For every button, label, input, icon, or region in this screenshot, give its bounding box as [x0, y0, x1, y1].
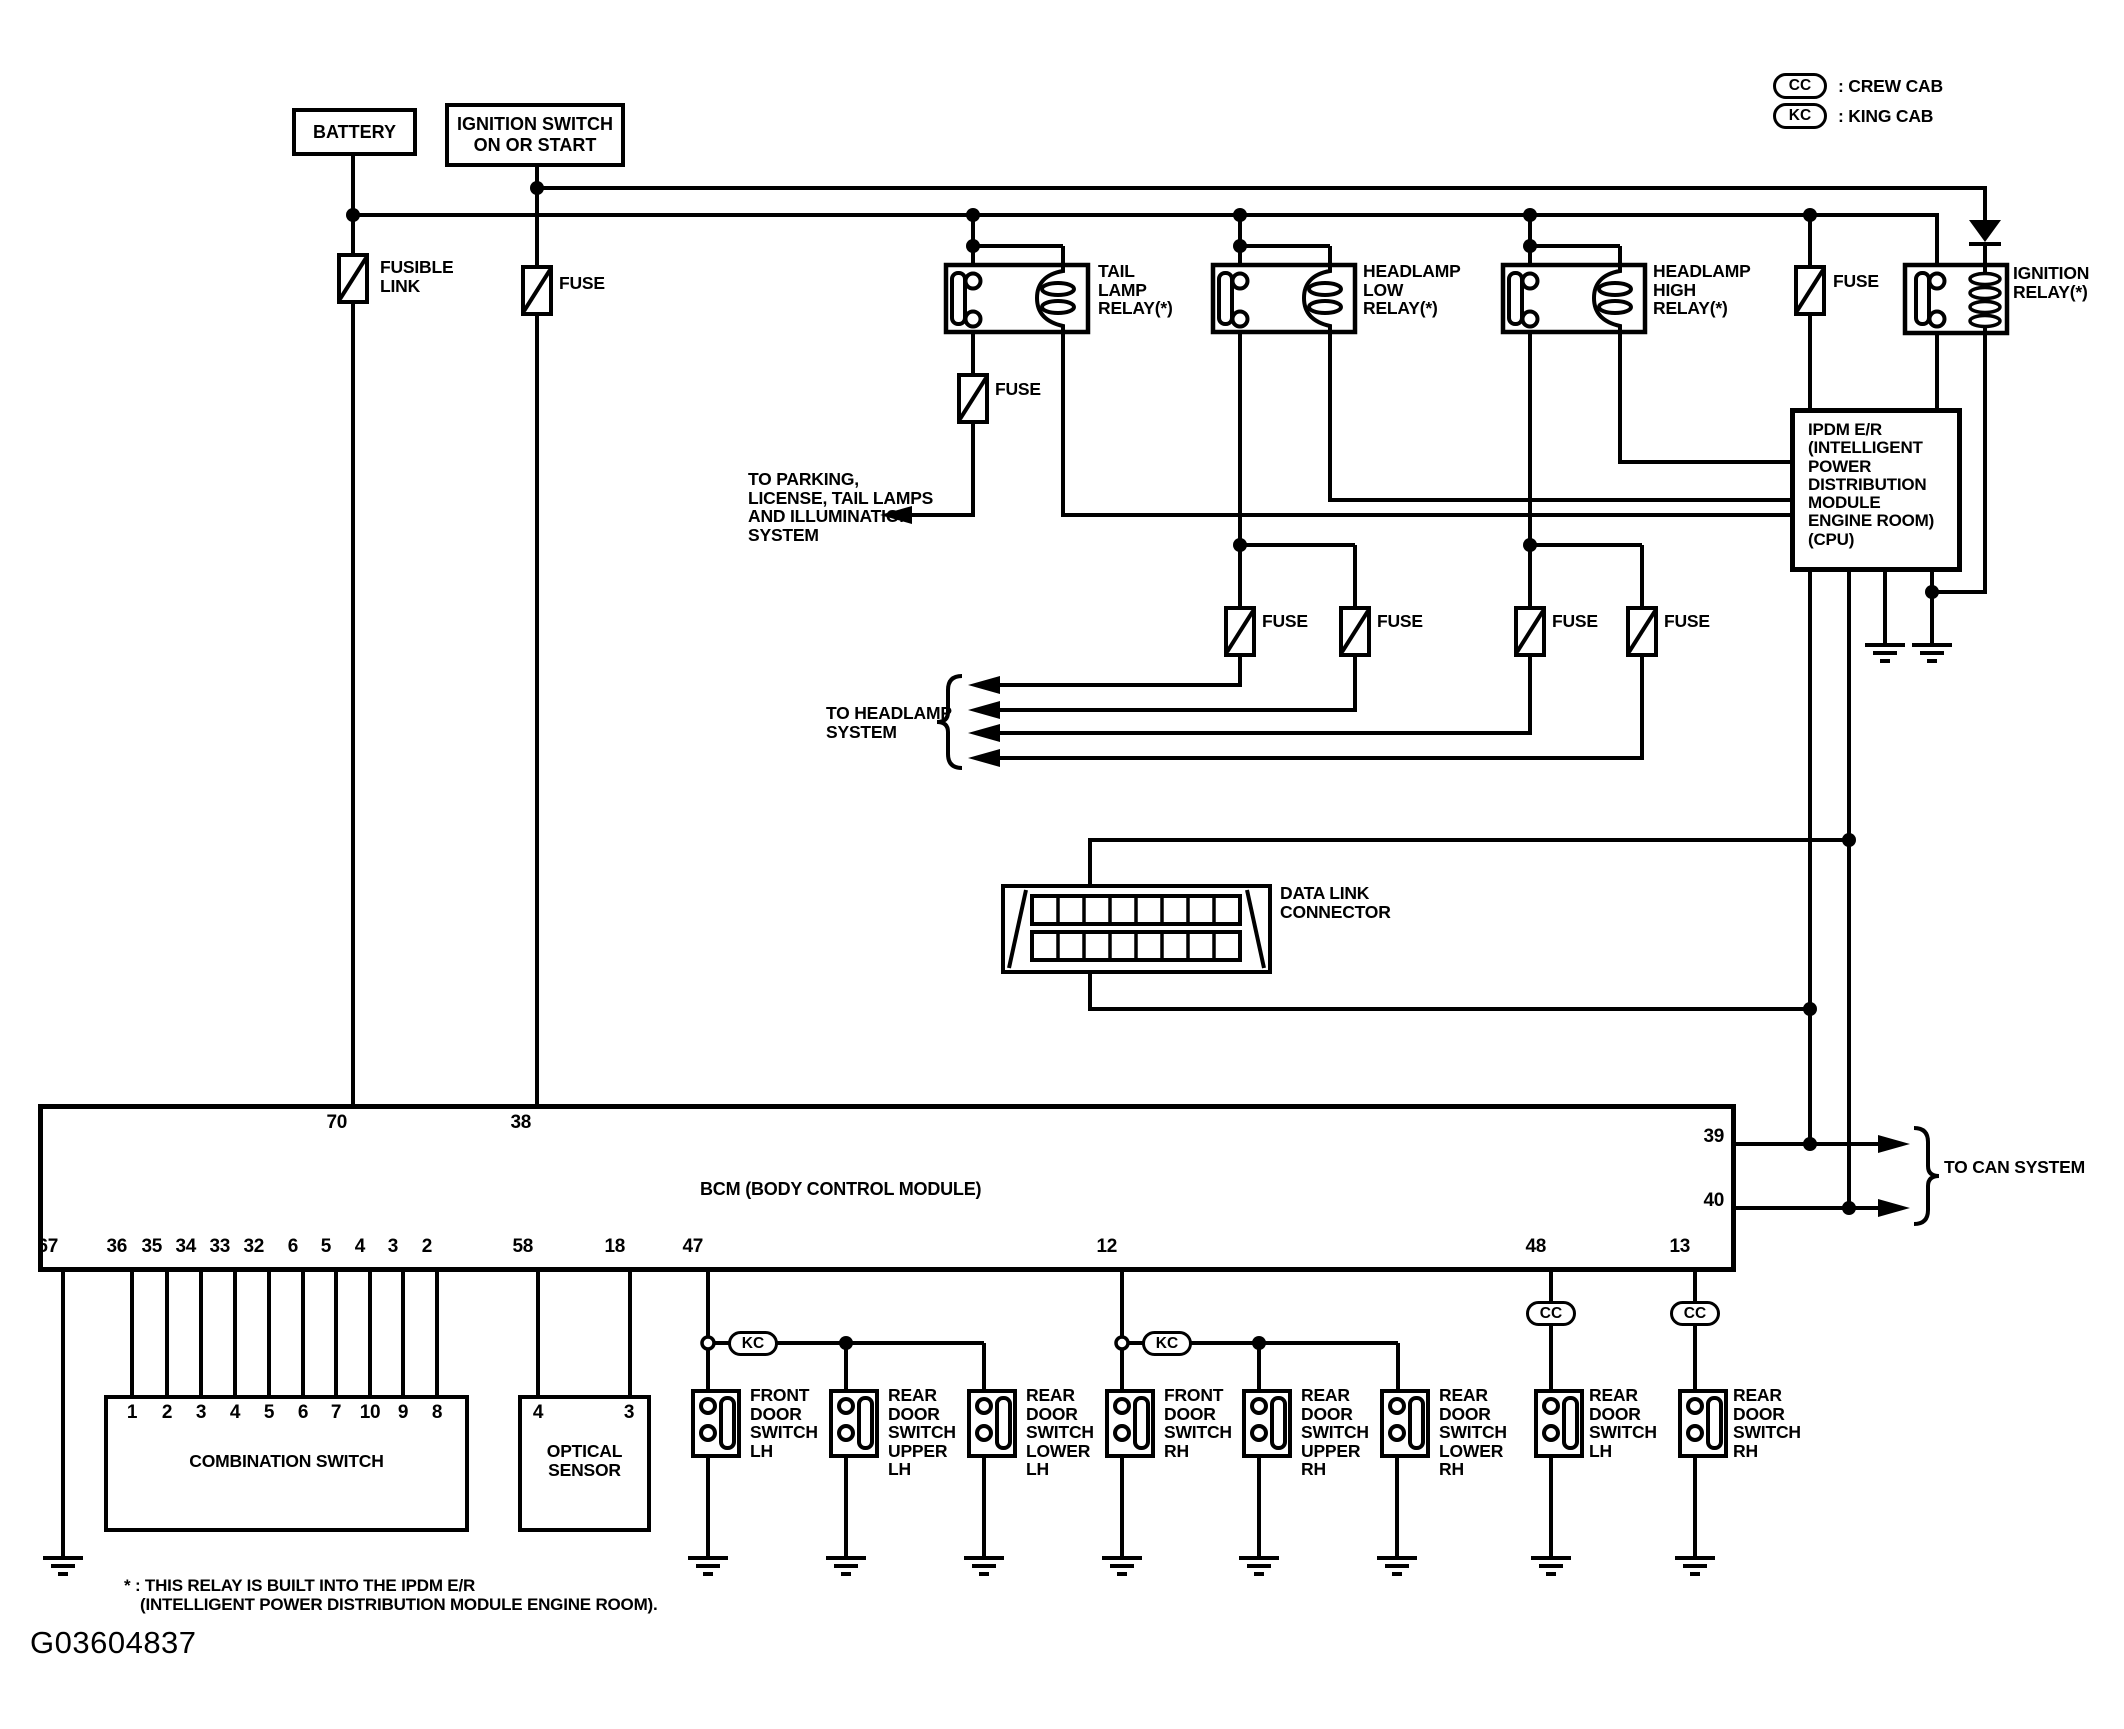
fusible-link-label: FUSIBLE LINK: [380, 258, 453, 295]
bcm-pin-58: 58: [493, 1236, 533, 1258]
door-switch-label: FRONT DOOR SWITCH LH: [750, 1386, 818, 1460]
bcm-pin-13: 13: [1650, 1236, 1690, 1258]
cs-pin-8: 8: [422, 1402, 452, 1424]
cc-tag-label: CC: [1789, 77, 1811, 95]
fuse-label: FUSE: [1664, 612, 1710, 631]
rear-door-switch-rh-icon: [1680, 1391, 1726, 1456]
fuse-label: FUSE: [1377, 612, 1423, 631]
ipdm-fuse-icon: [1796, 267, 1824, 314]
rear-door-switch-lower-rh-icon: [1382, 1391, 1428, 1456]
data-link-connector-symbol: [1003, 886, 1270, 972]
kc-tag: KC: [1142, 1331, 1192, 1356]
fuse-label: FUSE: [1262, 612, 1308, 631]
cs-pin-2: 2: [152, 1402, 182, 1424]
tail-lamp-fuse-icon: [959, 375, 987, 422]
footnote-line2: (INTELLIGENT POWER DISTRIBUTION MODULE E…: [140, 1596, 658, 1614]
kc-tag: KC: [728, 1331, 778, 1356]
combination-switch-label: COMBINATION SWITCH: [104, 1452, 469, 1471]
door-switch-label: REAR DOOR SWITCH LOWER RH: [1439, 1386, 1507, 1479]
cc-tag: CC: [1670, 1301, 1720, 1326]
door-switch-label: REAR DOOR SWITCH UPPER RH: [1301, 1386, 1369, 1479]
king-cab-desc: : KING CAB: [1838, 107, 1933, 126]
to-headlamp-arrow-icon: [968, 749, 1000, 767]
door-switch-label: REAR DOOR SWITCH LOWER LH: [1026, 1386, 1094, 1479]
to-can-arrow-icon: [1878, 1199, 1910, 1217]
headlamp-fuse-4-icon: [1628, 608, 1656, 655]
cs-pin-9: 9: [388, 1402, 418, 1424]
headlamp-low-relay-symbol: [1213, 265, 1355, 332]
cs-pin-10: 10: [355, 1402, 385, 1424]
bcm-pin-12: 12: [1077, 1236, 1117, 1258]
diode-icon: [1969, 220, 2001, 244]
bcm-pin-47: 47: [663, 1236, 703, 1258]
bcm-pin-48: 48: [1506, 1236, 1546, 1258]
to-headlamp-label: TO HEADLAMP SYSTEM: [826, 704, 952, 741]
crew-cab-tag: CC: [1773, 73, 1827, 99]
fuse-label: FUSE: [1833, 272, 1879, 291]
bcm-pin-18: 18: [585, 1236, 625, 1258]
to-can-label: TO CAN SYSTEM: [1944, 1158, 2085, 1177]
ignition-relay-label: IGNITION RELAY(*): [2013, 264, 2089, 301]
can-brace: [1914, 1128, 1939, 1224]
door-switch-label: REAR DOOR SWITCH RH: [1733, 1386, 1801, 1460]
bcm-pin-2: 2: [392, 1236, 432, 1258]
ignition-relay-symbol: [1905, 265, 2007, 333]
headlamp-fuse-2-icon: [1341, 608, 1369, 655]
cs-pin-7: 7: [321, 1402, 351, 1424]
bcm-pin-70: 70: [307, 1112, 347, 1134]
battery-label: BATTERY: [313, 122, 396, 143]
cc-tag-label: CC: [1540, 1305, 1562, 1323]
door-switch-label: REAR DOOR SWITCH UPPER LH: [888, 1386, 956, 1479]
headlamp-fuse-1-icon: [1226, 608, 1254, 655]
cc-tag-label: CC: [1684, 1305, 1706, 1323]
front-door-switch-lh-icon: [693, 1391, 739, 1456]
battery-box: BATTERY: [292, 108, 417, 156]
figure-id: G03604837: [30, 1625, 197, 1661]
door-switch-label: FRONT DOOR SWITCH RH: [1164, 1386, 1232, 1460]
fuse-label: FUSE: [995, 380, 1041, 399]
headlamp-fuse-3-icon: [1516, 608, 1544, 655]
ipdm-label: IPDM E/R (INTELLIGENT POWER DISTRIBUTION…: [1808, 421, 1958, 549]
cs-pin-5: 5: [254, 1402, 284, 1424]
ignition-switch-box: IGNITION SWITCH ON OR START: [445, 103, 625, 167]
data-link-connector-label: DATA LINK CONNECTOR: [1280, 884, 1391, 921]
os-pin-3: 3: [614, 1402, 644, 1424]
tail-lamp-relay-label: TAIL LAMP RELAY(*): [1098, 262, 1173, 318]
crew-cab-desc: : CREW CAB: [1838, 77, 1943, 96]
ignition-fuse-icon: [523, 267, 551, 314]
cc-tag: CC: [1526, 1301, 1576, 1326]
king-cab-tag: KC: [1773, 103, 1827, 129]
wiring-diagram: BATTERY IGNITION SWITCH ON OR START IPDM…: [0, 0, 2124, 1729]
bcm-pin-40: 40: [1680, 1190, 1724, 1212]
headlamp-low-relay-label: HEADLAMP LOW RELAY(*): [1363, 262, 1461, 318]
bcm-pin-36: 36: [87, 1236, 127, 1258]
kc-tag-label: KC: [1156, 1335, 1178, 1353]
cs-pin-6: 6: [288, 1402, 318, 1424]
bcm-pin-67: 67: [18, 1236, 58, 1258]
optical-sensor-label: OPTICAL SENSOR: [518, 1442, 651, 1479]
front-door-switch-rh-icon: [1107, 1391, 1153, 1456]
rear-door-switch-lh-icon: [1536, 1391, 1582, 1456]
fuse-label: FUSE: [1552, 612, 1598, 631]
rear-door-switch-upper-lh-icon: [831, 1391, 877, 1456]
cs-pin-4: 4: [220, 1402, 250, 1424]
rear-door-switch-upper-rh-icon: [1244, 1391, 1290, 1456]
headlamp-high-relay-label: HEADLAMP HIGH RELAY(*): [1653, 262, 1751, 318]
bcm-pin-39: 39: [1680, 1126, 1724, 1148]
to-parking-label: TO PARKING, LICENSE, TAIL LAMPS AND ILLU…: [748, 470, 933, 544]
tail-lamp-relay-symbol: [946, 265, 1088, 332]
footnote-line1: * : THIS RELAY IS BUILT INTO THE IPDM E/…: [124, 1577, 475, 1595]
rear-door-switch-lower-lh-icon: [969, 1391, 1015, 1456]
to-headlamp-arrow-icon: [968, 724, 1000, 742]
to-can-arrow-icon: [1878, 1135, 1910, 1153]
door-switch-label: REAR DOOR SWITCH LH: [1589, 1386, 1657, 1460]
cs-pin-3: 3: [186, 1402, 216, 1424]
cs-pin-1: 1: [117, 1402, 147, 1424]
bcm-pin-38: 38: [491, 1112, 531, 1134]
ignition-switch-label: IGNITION SWITCH ON OR START: [457, 114, 613, 155]
kc-tag-label: KC: [742, 1335, 764, 1353]
kc-tag-label: KC: [1789, 107, 1811, 125]
bcm-label: BCM (BODY CONTROL MODULE): [700, 1180, 981, 1199]
to-headlamp-arrow-icon: [968, 676, 1000, 694]
os-pin-4: 4: [523, 1402, 553, 1424]
fusible-link-icon: [339, 255, 367, 302]
headlamp-high-relay-symbol: [1503, 265, 1645, 332]
fuse-label: FUSE: [559, 274, 605, 293]
to-headlamp-arrow-icon: [968, 701, 1000, 719]
